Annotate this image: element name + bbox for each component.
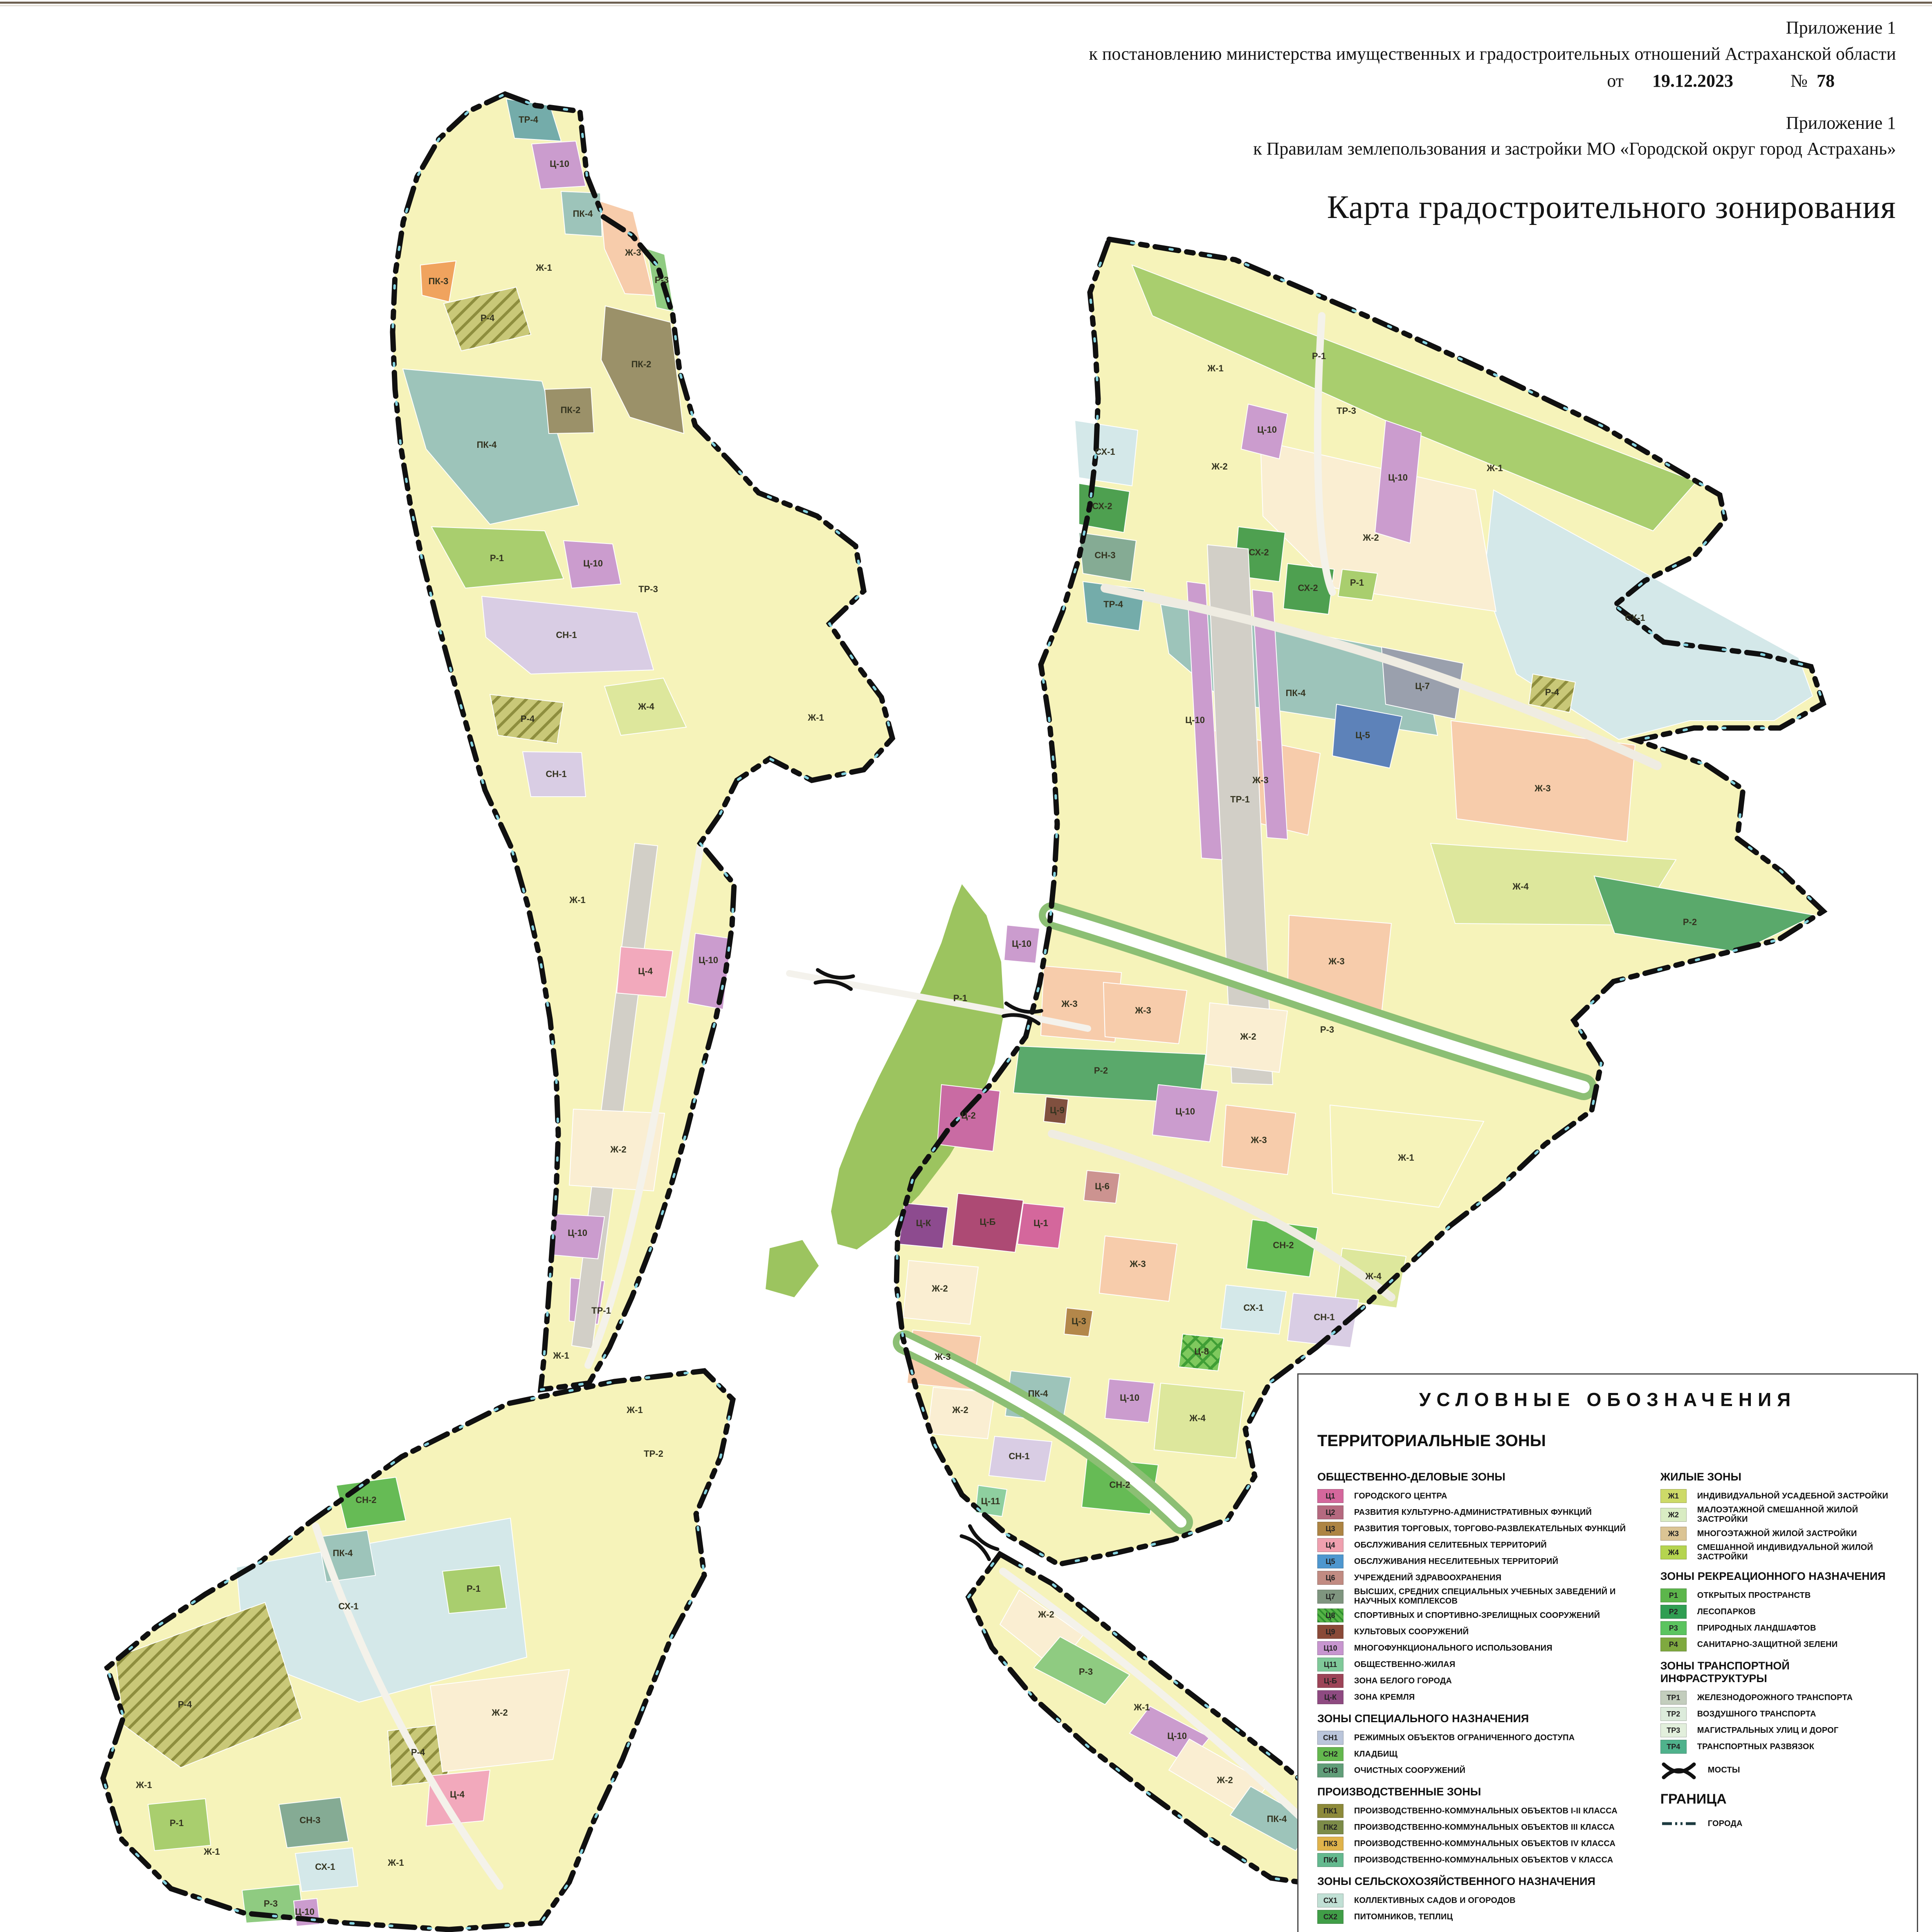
- legend-item-label: ПРОИЗВОДСТВЕННО-КОММУНАЛЬНЫХ ОБЪЕКТОВ V …: [1354, 1856, 1613, 1865]
- zone-label-СН-1: СН-1: [546, 769, 566, 779]
- zone-label-Ж-2: Ж-2: [1240, 1031, 1256, 1042]
- zone-label-Ж-1: Ж-1: [135, 1780, 152, 1790]
- legend-item-Ж3: Ж3МНОГОЭТАЖНОЙ ЖИЛОЙ ЗАСТРОЙКИ: [1660, 1527, 1898, 1541]
- zone-label-Ц-10: Ц-10: [1257, 425, 1277, 435]
- zone-label-Ж-3: Ж-3: [1134, 1005, 1151, 1015]
- zone-label-Ц-11: Ц-11: [981, 1496, 1000, 1506]
- legend-border-row: ГОРОДА: [1660, 1813, 1898, 1834]
- zone-label-Ц-1: Ц-1: [1033, 1218, 1048, 1228]
- zone-label-Р-3: Р-3: [655, 275, 669, 285]
- zone-label-Ц-8: Ц-8: [1194, 1346, 1209, 1357]
- zone-label-Ж-1: Ж-1: [535, 263, 552, 273]
- zone-label-Ц-6: Ц-6: [1095, 1181, 1110, 1191]
- legend-color-chip: Ц3: [1317, 1522, 1343, 1536]
- zone-label-Ц-3: Ц-3: [1072, 1316, 1086, 1326]
- legend-group-title: ЗОНЫ СПЕЦИАЛЬНОГО НАЗНАЧЕНИЯ: [1317, 1712, 1646, 1725]
- zone-label-Ц-10: Ц-10: [1012, 939, 1031, 949]
- legend-color-chip: Ж4: [1660, 1546, 1687, 1559]
- legend-item-label: ПРОИЗВОДСТВЕННО-КОММУНАЛЬНЫХ ОБЪЕКТОВ I-…: [1354, 1806, 1617, 1816]
- zone-label-СХ-1: СХ-1: [1243, 1303, 1263, 1313]
- zone-label-Ж-2: Ж-2: [610, 1144, 626, 1155]
- zone-label-Р-4: Р-4: [521, 714, 535, 724]
- zone-label-Ж-4: Ж-4: [1512, 881, 1529, 892]
- legend-color-chip: Ц-К: [1317, 1690, 1343, 1704]
- legend-item-label: ИНДИВИДУАЛЬНОЙ УСАДЕБНОЙ ЗАСТРОЙКИ: [1697, 1492, 1888, 1501]
- header-num-sign: №: [1790, 71, 1808, 91]
- legend-item-label: САНИТАРНО-ЗАЩИТНОЙ ЗЕЛЕНИ: [1697, 1640, 1838, 1649]
- zone-label-Р-2: Р-2: [1094, 1065, 1108, 1076]
- legend-item-label: КОЛЛЕКТИВНЫХ САДОВ И ОГОРОДОВ: [1354, 1896, 1516, 1905]
- legend-item-label: ГОРОДСКОГО ЦЕНТРА: [1354, 1492, 1447, 1501]
- legend-item-ТР1: ТР1ЖЕЛЕЗНОДОРОЖНОГО ТРАНСПОРТА: [1660, 1691, 1898, 1705]
- legend-item-label: ПРОИЗВОДСТВЕННО-КОММУНАЛЬНЫХ ОБЪЕКТОВ IV…: [1354, 1839, 1615, 1849]
- zone-label-Р-3: Р-3: [264, 1898, 278, 1909]
- legend-item-Ц8: Ц8СПОРТИВНЫХ И СПОРТИВНО-ЗРЕЛИЩНЫХ СООРУ…: [1317, 1609, 1646, 1622]
- zone-label-Р-1: Р-1: [490, 553, 504, 563]
- legend-item-label: СПОРТИВНЫХ И СПОРТИВНО-ЗРЕЛИЩНЫХ СООРУЖЕ…: [1354, 1611, 1600, 1620]
- legend-color-chip: ПК3: [1317, 1837, 1343, 1851]
- legend-item-label: ТРАНСПОРТНЫХ РАЗВЯЗОК: [1697, 1742, 1814, 1752]
- zone-label-Ж-1: Ж-1: [807, 712, 824, 723]
- legend-left-column: ОБЩЕСТВЕННО-ДЕЛОВЫЕ ЗОНЫЦ1ГОРОДСКОГО ЦЕН…: [1317, 1462, 1646, 1926]
- zone-label-Ж-1: Ж-1: [1133, 1702, 1150, 1712]
- zone-label-Р-1: Р-1: [1312, 351, 1326, 361]
- legend-item-Ц11: Ц11ОБЩЕСТВЕННО-ЖИЛАЯ: [1317, 1658, 1646, 1671]
- legend-item-Ц4: Ц4ОБСЛУЖИВАНИЯ СЕЛИТЕБНЫХ ТЕРРИТОРИЙ: [1317, 1538, 1646, 1552]
- header-ot: от: [1607, 71, 1624, 91]
- zone-label-ТР-1: ТР-1: [591, 1305, 611, 1316]
- zone-label-СН-1: СН-1: [1009, 1451, 1029, 1461]
- zone-label-Р-3: Р-3: [1320, 1024, 1334, 1035]
- legend-color-chip: Ц7: [1317, 1590, 1343, 1604]
- zone-label-СХ-2: СХ-2: [1249, 547, 1269, 557]
- legend-item-label: СМЕШАННОЙ ИНДИВИДУАЛЬНОЙ ЖИЛОЙ ЗАСТРОЙКИ: [1697, 1543, 1898, 1562]
- legend-color-chip: ТР4: [1660, 1740, 1687, 1754]
- legend-group-title: ЗОНЫ РЕКРЕАЦИОННОГО НАЗНАЧЕНИЯ: [1660, 1570, 1898, 1583]
- legend-item-СХ1: СХ1КОЛЛЕКТИВНЫХ САДОВ И ОГОРОДОВ: [1317, 1894, 1646, 1907]
- legend-item-Ц5: Ц5ОБСЛУЖИВАНИЯ НЕСЕЛИТЕБНЫХ ТЕРРИТОРИЙ: [1317, 1555, 1646, 1568]
- legend-color-chip: ТР3: [1660, 1723, 1687, 1737]
- legend-color-chip: ПК1: [1317, 1804, 1343, 1818]
- legend-color-chip: Ц6: [1317, 1571, 1343, 1585]
- legend-item-label: ПРОИЗВОДСТВЕННО-КОММУНАЛЬНЫХ ОБЪЕКТОВ II…: [1354, 1823, 1615, 1832]
- legend-item-ТР3: ТР3МАГИСТРАЛЬНЫХ УЛИЦ И ДОРОГ: [1660, 1723, 1898, 1737]
- header-annex-2: Приложение 1: [424, 110, 1896, 136]
- zone-label-Ж-3: Ж-3: [1328, 956, 1344, 966]
- document-header: Приложение 1 к постановлению министерств…: [424, 15, 1896, 226]
- legend-item-label: РАЗВИТИЯ КУЛЬТУРНО-АДМИНИСТРАТИВНЫХ ФУНК…: [1354, 1508, 1592, 1517]
- legend-color-chip: Ц11: [1317, 1658, 1343, 1671]
- legend-item-Р4: Р4САНИТАРНО-ЗАЩИТНОЙ ЗЕЛЕНИ: [1660, 1638, 1898, 1651]
- legend-color-chip: СХ1: [1317, 1894, 1343, 1907]
- legend-item-label: ОБСЛУЖИВАНИЯ НЕСЕЛИТЕБНЫХ ТЕРРИТОРИЙ: [1354, 1557, 1558, 1566]
- header-rules: к Правилам землепользования и застройки …: [424, 136, 1896, 162]
- bridge-icon: [1660, 1759, 1697, 1781]
- zone-label-Ц-7: Ц-7: [1415, 681, 1430, 691]
- zone-label-СХ-1: СХ-1: [315, 1862, 335, 1872]
- legend-item-Ц10: Ц10МНОГОФУНКЦИОНАЛЬНОГО ИСПОЛЬЗОВАНИЯ: [1317, 1641, 1646, 1655]
- bridge-symbol: [962, 1526, 997, 1559]
- zone-label-Ж-2: Ж-2: [1038, 1609, 1054, 1620]
- zone-label-Ц-Б: Ц-Б: [979, 1217, 995, 1227]
- zone-label-Ц-К: Ц-К: [916, 1218, 931, 1228]
- legend-item-Р2: Р2ЛЕСОПАРКОВ: [1660, 1605, 1898, 1619]
- legend-item-Ц2: Ц2РАЗВИТИЯ КУЛЬТУРНО-АДМИНИСТРАТИВНЫХ ФУ…: [1317, 1505, 1646, 1519]
- zone-label-Ц-9: Ц-9: [1050, 1105, 1065, 1115]
- legend-color-chip: ПК4: [1317, 1853, 1343, 1867]
- legend-color-chip: ТР1: [1660, 1691, 1687, 1705]
- zoning-map-page: ТР-4Ц-10ПК-4Ж-1Ж-3Р-3ПК-3Р-4ПК-2ПК-2ПК-4…: [0, 0, 1932, 1932]
- legend-item-label: ВЫСШИХ, СРЕДНИХ СПЕЦИАЛЬНЫХ УЧЕБНЫХ ЗАВЕ…: [1354, 1587, 1646, 1606]
- legend-item-label: МАГИСТРАЛЬНЫХ УЛИЦ И ДОРОГ: [1697, 1726, 1839, 1735]
- zone-label-ТР-3: ТР-3: [638, 584, 658, 594]
- zone-label-Ж-1: Ж-1: [626, 1405, 643, 1415]
- zone-label-СН-3: СН-3: [1094, 550, 1115, 560]
- header-annex-1: Приложение 1: [424, 15, 1896, 41]
- legend-item-СН3: СН3ОЧИСТНЫХ СООРУЖЕНИЙ: [1317, 1764, 1646, 1777]
- legend-color-chip: Ц9: [1317, 1625, 1343, 1639]
- header-date: 19.12.2023: [1652, 71, 1733, 91]
- zone-label-Ц-10: Ц-10: [1388, 472, 1408, 483]
- legend-color-chip: СН3: [1317, 1764, 1343, 1777]
- zone-label-ПК-4: ПК-4: [1028, 1388, 1049, 1399]
- zone-label-Ж-3: Ж-3: [1534, 783, 1550, 793]
- legend-item-Ц-Б: Ц-БЗОНА БЕЛОГО ГОРОДА: [1317, 1674, 1646, 1688]
- zone-label-Ж-2: Ж-2: [931, 1283, 948, 1294]
- legend-item-СН2: СН2КЛАДБИЩ: [1317, 1747, 1646, 1761]
- zone-label-Ж-1: Ж-1: [203, 1847, 220, 1857]
- zone-label-СХ-1: СХ-1: [1625, 613, 1645, 623]
- legend-item-Ц1: Ц1ГОРОДСКОГО ЦЕНТРА: [1317, 1489, 1646, 1503]
- zone-label-Ц-10: Ц-10: [1185, 715, 1205, 725]
- legend-item-label: МНОГОФУНКЦИОНАЛЬНОГО ИСПОЛЬЗОВАНИЯ: [1354, 1644, 1552, 1653]
- legend-item-label: ПИТОМНИКОВ, ТЕПЛИЦ: [1354, 1912, 1453, 1922]
- zone-label-ПК-2: ПК-2: [631, 359, 651, 369]
- zone-parcel-Ж-2: [430, 1669, 569, 1772]
- legend-bridges-row: МОСТЫ: [1660, 1759, 1898, 1781]
- zone-label-Ж-4: Ж-4: [1365, 1271, 1382, 1281]
- zone-label-Ж-3: Ж-3: [1250, 1135, 1267, 1145]
- zone-label-Ц-10: Ц-10: [699, 955, 718, 965]
- legend-color-chip: Р3: [1660, 1621, 1687, 1635]
- zone-label-ТР-3: ТР-3: [1337, 406, 1356, 416]
- legend-group-title: ЗОНЫ ТРАНСПОРТНОЙ ИНФРАСТРУКТУРЫ: [1660, 1660, 1898, 1685]
- legend-border-title: ГРАНИЦА: [1660, 1791, 1898, 1807]
- legend-color-chip: Ц8: [1317, 1609, 1343, 1622]
- zone-label-СН-1: СН-1: [1314, 1312, 1334, 1322]
- zone-label-Ж-2: Ж-2: [1216, 1775, 1233, 1785]
- legend-item-label: ОБСЛУЖИВАНИЯ СЕЛИТЕБНЫХ ТЕРРИТОРИЙ: [1354, 1541, 1547, 1550]
- legend-item-label: МАЛОЭТАЖНОЙ СМЕШАННОЙ ЖИЛОЙ ЗАСТРОЙКИ: [1697, 1505, 1898, 1524]
- zone-label-Ц-10: Ц-10: [1175, 1106, 1195, 1117]
- zone-label-Ж-2: Ж-2: [952, 1405, 968, 1415]
- zone-label-Ц-10: Ц-10: [568, 1228, 587, 1238]
- zone-label-СН-2: СН-2: [355, 1495, 376, 1505]
- zone-label-ПК-4: ПК-4: [1286, 688, 1306, 698]
- legend-item-Р3: Р3ПРИРОДНЫХ ЛАНДШАФТОВ: [1660, 1621, 1898, 1635]
- legend-item-Р1: Р1ОТКРЫТЫХ ПРОСТРАНСТВ: [1660, 1588, 1898, 1602]
- legend-bridges-label: МОСТЫ: [1708, 1766, 1740, 1775]
- zone-label-СН-2: СН-2: [1273, 1240, 1294, 1250]
- legend-title: УСЛОВНЫЕ ОБОЗНАЧЕНИЯ: [1317, 1388, 1898, 1411]
- legend-color-chip: Ц4: [1317, 1538, 1343, 1552]
- zone-label-Ж-1: Ж-1: [553, 1350, 569, 1361]
- zone-label-Ж-3: Ж-3: [1129, 1259, 1146, 1269]
- zone-label-Ж-3: Ж-3: [1252, 775, 1268, 785]
- zone-label-СХ-2: СХ-2: [1092, 501, 1112, 511]
- zone-label-Ж-3: Ж-3: [1061, 999, 1077, 1009]
- zone-label-Ж-4: Ж-4: [1189, 1413, 1206, 1423]
- legend-item-label: КУЛЬТОВЫХ СООРУЖЕНИЙ: [1354, 1627, 1469, 1637]
- legend-item-Ц-К: Ц-КЗОНА КРЕМЛЯ: [1317, 1690, 1646, 1704]
- legend-item-label: РЕЖИМНЫХ ОБЪЕКТОВ ОГРАНИЧЕННОГО ДОСТУПА: [1354, 1733, 1575, 1743]
- legend-item-label: ЛЕСОПАРКОВ: [1697, 1607, 1756, 1617]
- legend-item-label: ПРИРОДНЫХ ЛАНДШАФТОВ: [1697, 1624, 1816, 1633]
- legend-item-ПК2: ПК2ПРОИЗВОДСТВЕННО-КОММУНАЛЬНЫХ ОБЪЕКТОВ…: [1317, 1820, 1646, 1834]
- page-title: Карта градостроительного зонирования: [424, 189, 1896, 226]
- zone-label-ПК-4: ПК-4: [1267, 1814, 1287, 1824]
- legend-color-chip: Ж2: [1660, 1508, 1687, 1522]
- legend-color-chip: ТР2: [1660, 1707, 1687, 1721]
- legend-color-chip: Ц-Б: [1317, 1674, 1343, 1688]
- legend-color-chip: Р4: [1660, 1638, 1687, 1651]
- legend-item-label: МНОГОЭТАЖНОЙ ЖИЛОЙ ЗАСТРОЙКИ: [1697, 1529, 1857, 1539]
- legend-color-chip: Ц2: [1317, 1505, 1343, 1519]
- zone-label-Ж-2: Ж-2: [491, 1707, 508, 1718]
- zone-label-Ц-10: Ц-10: [295, 1907, 315, 1917]
- zone-label-Ж-1: Ж-1: [387, 1858, 404, 1868]
- legend-box: УСЛОВНЫЕ ОБОЗНАЧЕНИЯ ТЕРРИТОРИАЛЬНЫЕ ЗОН…: [1297, 1373, 1918, 1932]
- legend-item-label: ОБЩЕСТВЕННО-ЖИЛАЯ: [1354, 1660, 1455, 1669]
- zone-label-Ж-1: Ж-1: [1207, 363, 1223, 373]
- zone-label-Ж-4: Ж-4: [638, 701, 654, 712]
- legend-item-ПК1: ПК1ПРОИЗВОДСТВЕННО-КОММУНАЛЬНЫХ ОБЪЕКТОВ…: [1317, 1804, 1646, 1818]
- legend-color-chip: Ц1: [1317, 1489, 1343, 1503]
- zone-label-СХ-2: СХ-2: [1298, 583, 1318, 593]
- zone-label-ПК-3: ПК-3: [429, 276, 449, 286]
- zone-label-Р-1: Р-1: [170, 1818, 184, 1828]
- zone-label-Ц-2: Ц-2: [961, 1110, 976, 1121]
- legend-item-ТР4: ТР4ТРАНСПОРТНЫХ РАЗВЯЗОК: [1660, 1740, 1898, 1754]
- zone-label-Ц-10: Ц-10: [583, 558, 603, 568]
- header-resolution: к постановлению министерства имущественн…: [424, 41, 1896, 67]
- zone-label-Р-4: Р-4: [411, 1747, 425, 1757]
- legend-group-title: ЖИЛЫЕ ЗОНЫ: [1660, 1471, 1898, 1483]
- legend-item-ПК3: ПК3ПРОИЗВОДСТВЕННО-КОММУНАЛЬНЫХ ОБЪЕКТОВ…: [1317, 1837, 1646, 1851]
- legend-color-chip: Р2: [1660, 1605, 1687, 1619]
- zone-label-Р-4: Р-4: [178, 1699, 192, 1710]
- zone-label-Р-1: Р-1: [467, 1584, 481, 1594]
- zone-label-ТР-2: ТР-2: [644, 1449, 663, 1459]
- zone-label-Р-2: Р-2: [1683, 917, 1697, 927]
- zone-label-СХ-1: СХ-1: [338, 1601, 358, 1611]
- legend-item-Ц3: Ц3РАЗВИТИЯ ТОРГОВЫХ, ТОРГОВО-РАЗВЛЕКАТЕЛ…: [1317, 1522, 1646, 1536]
- zone-label-Р-4: Р-4: [481, 313, 495, 323]
- city-border-line-icon: [1660, 1813, 1697, 1834]
- legend-item-ПК4: ПК4ПРОИЗВОДСТВЕННО-КОММУНАЛЬНЫХ ОБЪЕКТОВ…: [1317, 1853, 1646, 1867]
- zone-label-ПК-4: ПК-4: [333, 1548, 353, 1558]
- legend-item-СХ2: СХ2ПИТОМНИКОВ, ТЕПЛИЦ: [1317, 1910, 1646, 1924]
- zone-label-ТР-1: ТР-1: [1230, 794, 1250, 804]
- legend-color-chip: СН2: [1317, 1747, 1343, 1761]
- legend-item-Ж4: Ж4СМЕШАННОЙ ИНДИВИДУАЛЬНОЙ ЖИЛОЙ ЗАСТРОЙ…: [1660, 1543, 1898, 1562]
- legend-item-ТР2: ТР2ВОЗДУШНОГО ТРАНСПОРТА: [1660, 1707, 1898, 1721]
- zone-label-Ц-4: Ц-4: [450, 1789, 465, 1799]
- landmass-river-islet: [766, 1240, 819, 1297]
- legend-color-chip: Ж1: [1660, 1489, 1687, 1503]
- legend-territorial-title: ТЕРРИТОРИАЛЬНЫЕ ЗОНЫ: [1317, 1432, 1898, 1450]
- legend-item-label: УЧРЕЖДЕНИЙ ЗДРАВООХРАНЕНИЯ: [1354, 1573, 1501, 1583]
- zone-label-Ж-1: Ж-1: [569, 895, 585, 905]
- legend-item-Ж2: Ж2МАЛОЭТАЖНОЙ СМЕШАННОЙ ЖИЛОЙ ЗАСТРОЙКИ: [1660, 1505, 1898, 1524]
- legend-group-title: ОБЩЕСТВЕННО-ДЕЛОВЫЕ ЗОНЫ: [1317, 1471, 1646, 1483]
- zone-label-Ж-1: Ж-1: [1397, 1152, 1414, 1163]
- legend-group-title: ПРОИЗВОДСТВЕННЫЕ ЗОНЫ: [1317, 1786, 1646, 1798]
- zone-label-Ж-1: Ж-1: [1486, 463, 1503, 473]
- header-date-number: от19.12.2023№ 78: [424, 70, 1896, 91]
- zone-label-Р-4: Р-4: [1545, 687, 1559, 697]
- zone-label-Р-1: Р-1: [1350, 577, 1364, 588]
- legend-border-item-label: ГОРОДА: [1708, 1819, 1743, 1829]
- zone-label-ПК-2: ПК-2: [561, 405, 581, 415]
- legend-item-Ц7: Ц7ВЫСШИХ, СРЕДНИХ СПЕЦИАЛЬНЫХ УЧЕБНЫХ ЗА…: [1317, 1587, 1646, 1606]
- legend-color-chip: Р1: [1660, 1588, 1687, 1602]
- zone-label-ТР-4: ТР-4: [1103, 599, 1123, 609]
- zone-label-СН-3: СН-3: [299, 1815, 320, 1825]
- legend-item-label: КЛАДБИЩ: [1354, 1750, 1397, 1759]
- legend-color-chip: Ц10: [1317, 1641, 1343, 1655]
- legend-item-label: ЖЕЛЕЗНОДОРОЖНОГО ТРАНСПОРТА: [1697, 1693, 1853, 1703]
- legend-item-label: ВОЗДУШНОГО ТРАНСПОРТА: [1697, 1710, 1816, 1719]
- zone-label-Ж-2: Ж-2: [1362, 532, 1379, 543]
- legend-item-label: ЗОНА БЕЛОГО ГОРОДА: [1354, 1676, 1452, 1686]
- legend-item-Ц9: Ц9КУЛЬТОВЫХ СООРУЖЕНИЙ: [1317, 1625, 1646, 1639]
- zone-label-Р-3: Р-3: [1079, 1667, 1093, 1677]
- zone-label-Ц-4: Ц-4: [638, 966, 653, 976]
- legend-item-Ц6: Ц6УЧРЕЖДЕНИЙ ЗДРАВООХРАНЕНИЯ: [1317, 1571, 1646, 1585]
- zone-label-Ц-5: Ц-5: [1355, 730, 1370, 740]
- zone-label-СН-1: СН-1: [556, 630, 577, 640]
- zone-label-Ж-3: Ж-3: [934, 1352, 950, 1362]
- zone-label-ПК-4: ПК-4: [477, 440, 497, 450]
- zone-label-Ж-3: Ж-3: [625, 247, 641, 258]
- zone-label-СН-2: СН-2: [1109, 1480, 1130, 1490]
- zone-label-Ц-10: Ц-10: [1167, 1731, 1187, 1741]
- zone-label-Ц-10: Ц-10: [1120, 1393, 1139, 1403]
- zone-label-Ж-2: Ж-2: [1211, 461, 1227, 472]
- legend-color-chip: Ж3: [1660, 1527, 1687, 1541]
- legend-color-chip: СХ2: [1317, 1910, 1343, 1924]
- legend-item-label: ЗОНА КРЕМЛЯ: [1354, 1693, 1415, 1702]
- legend-color-chip: ПК2: [1317, 1820, 1343, 1834]
- legend-group-title: ЗОНЫ СЕЛЬСКОХОЗЯЙСТВЕННОГО НАЗНАЧЕНИЯ: [1317, 1875, 1646, 1888]
- legend-color-chip: СН1: [1317, 1731, 1343, 1745]
- zone-label-Р-1: Р-1: [953, 993, 967, 1003]
- zone-label-СХ-1: СХ-1: [1095, 447, 1115, 457]
- legend-item-СН1: СН1РЕЖИМНЫХ ОБЪЕКТОВ ОГРАНИЧЕННОГО ДОСТУ…: [1317, 1731, 1646, 1745]
- legend-color-chip: Ц5: [1317, 1555, 1343, 1568]
- legend-item-label: РАЗВИТИЯ ТОРГОВЫХ, ТОРГОВО-РАЗВЛЕКАТЕЛЬН…: [1354, 1524, 1626, 1534]
- legend-item-Ж1: Ж1ИНДИВИДУАЛЬНОЙ УСАДЕБНОЙ ЗАСТРОЙКИ: [1660, 1489, 1898, 1503]
- legend-item-label: ОЧИСТНЫХ СООРУЖЕНИЙ: [1354, 1766, 1465, 1775]
- header-num: 78: [1817, 71, 1835, 91]
- legend-right-column: ЖИЛЫЕ ЗОНЫЖ1ИНДИВИДУАЛЬНОЙ УСАДЕБНОЙ ЗАС…: [1660, 1462, 1898, 1926]
- legend-item-label: ОТКРЫТЫХ ПРОСТРАНСТВ: [1697, 1591, 1811, 1600]
